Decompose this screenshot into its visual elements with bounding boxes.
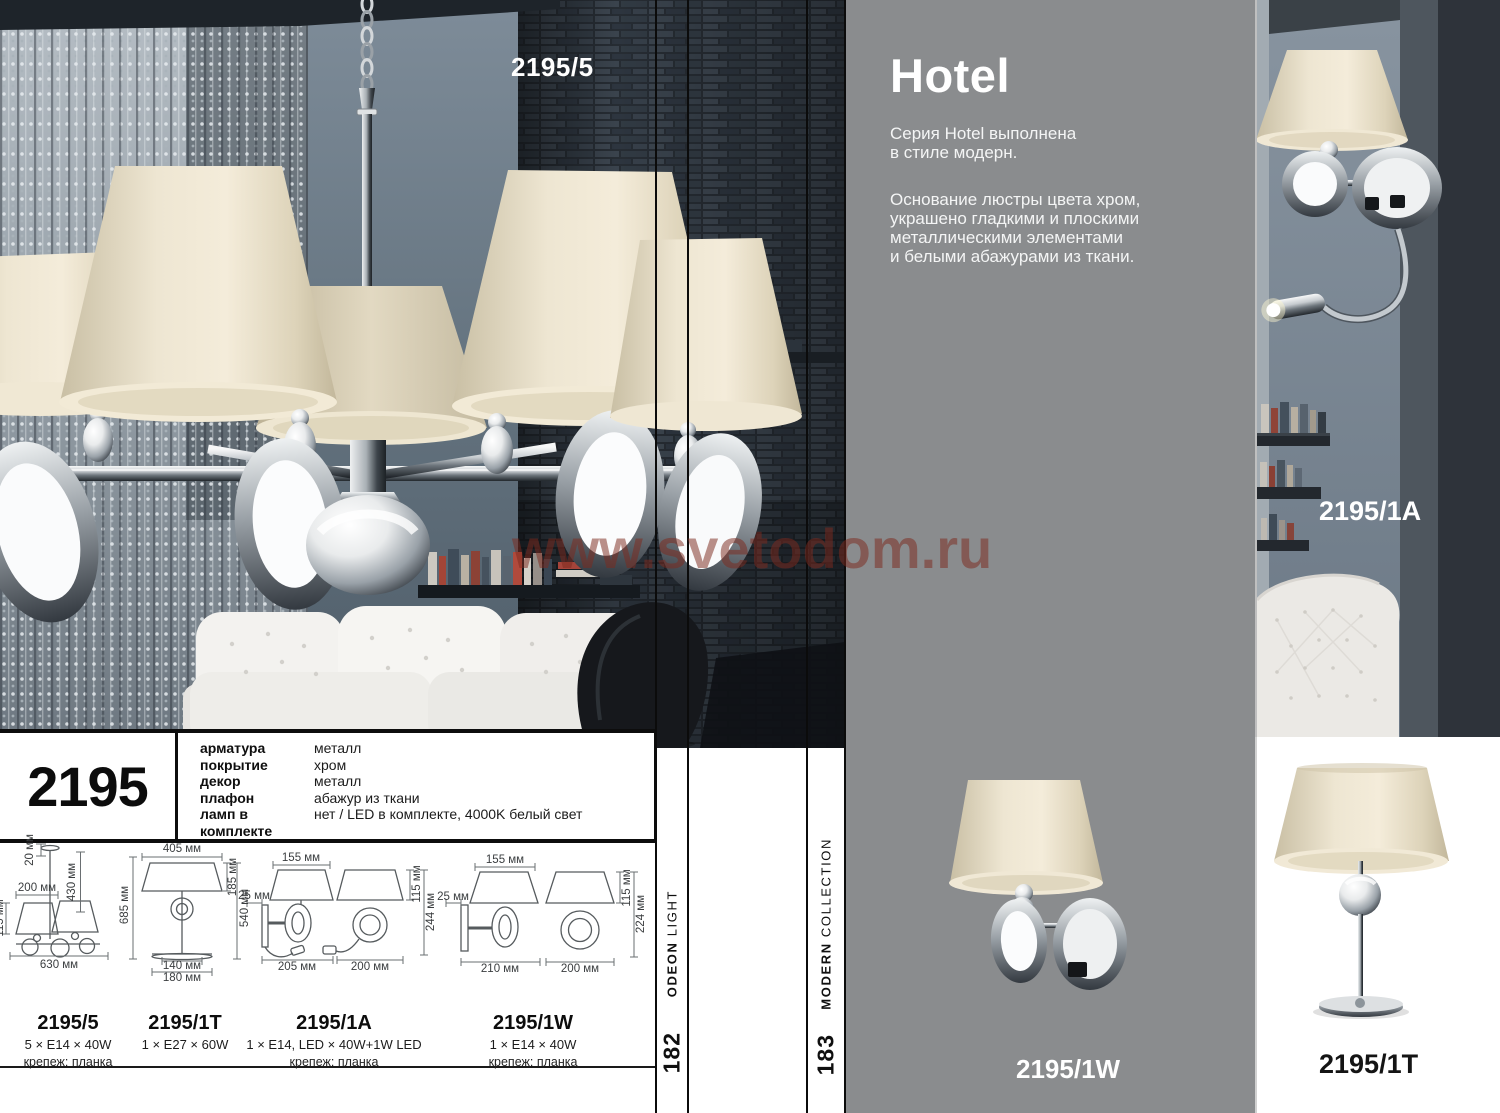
dim-label: 205 мм bbox=[278, 961, 316, 973]
dim-label: 200 мм bbox=[561, 963, 599, 975]
spec-row: арматураметалл bbox=[200, 740, 654, 757]
dim-label: 200 мм bbox=[18, 882, 56, 894]
spec-row: декорметалл bbox=[200, 773, 654, 790]
sidebar-odeon-light: ODEON LIGHT 182 bbox=[655, 0, 689, 1113]
lamp-switch bbox=[1068, 962, 1087, 977]
dim-label: 210 мм bbox=[481, 963, 519, 975]
dim-label: 115 мм bbox=[621, 869, 633, 906]
dim-label: 244 мм bbox=[425, 893, 437, 931]
wall-lamp-1w-label: 2195/1W bbox=[1016, 1054, 1120, 1085]
white-chair bbox=[1257, 575, 1399, 737]
spec-table: 2195 арматураметалл покрытиехром декорме… bbox=[0, 729, 657, 843]
dim-label: 224 мм bbox=[635, 895, 647, 933]
dim-label: 630 мм bbox=[40, 959, 78, 971]
series-panel: Hotel Серия Hotel выполнена в стиле моде… bbox=[845, 0, 1255, 1113]
table-lamp-1t-label: 2195/1T bbox=[1319, 1049, 1418, 1080]
model-number-cell: 2195 bbox=[0, 733, 178, 839]
dim-label: 685 мм bbox=[119, 886, 131, 924]
dim-label: 155 мм bbox=[282, 852, 320, 864]
chandelier-photo: 2195/5 bbox=[0, 0, 845, 748]
dim-label: 405 мм bbox=[163, 843, 201, 855]
wall-lamp-1a-photo: 2195/1A bbox=[1255, 0, 1500, 737]
wall-lamp-1a-label: 2195/1A bbox=[1319, 496, 1421, 527]
page-number-182: 182 bbox=[659, 1032, 686, 1073]
spec-row: ламп в комплектенет / LED в комплекте, 4… bbox=[200, 806, 654, 839]
spec-row: плафонабажур из ткани bbox=[200, 790, 654, 807]
dim-label: 115 мм bbox=[411, 865, 423, 902]
table-lamp-1t-photo: 2195/1T bbox=[1255, 737, 1500, 1113]
dim-label: 25 мм bbox=[238, 890, 270, 902]
led-switch bbox=[1390, 195, 1405, 208]
chandelier-scene bbox=[0, 0, 845, 748]
variant-2195-1a: 2195/1A 1 × E14, LED × 40W+1W LED крепеж… bbox=[246, 1012, 421, 1069]
dim-label: 430 мм bbox=[66, 863, 78, 901]
dim-label: 25 мм bbox=[437, 891, 469, 903]
dim-label: 115 мм bbox=[0, 899, 6, 936]
brand-odeon-light: ODEON LIGHT bbox=[665, 890, 680, 997]
model-number: 2195 bbox=[27, 754, 148, 819]
dim-label: 180 мм bbox=[163, 972, 201, 984]
series-title: Hotel bbox=[890, 48, 1010, 103]
dim-label: 200 мм bbox=[351, 961, 389, 973]
series-description: Основание люстры цвета хром, украшено гл… bbox=[890, 190, 1140, 266]
wall-lamp-1a-scene bbox=[1257, 0, 1500, 737]
series-intro: Серия Hotel выполнена в стиле модерн. bbox=[890, 124, 1076, 162]
wall-lamp-1w-image bbox=[930, 735, 1260, 1045]
lamp-switch bbox=[1365, 197, 1379, 210]
variant-2195-1w: 2195/1W 1 × E14 × 40W крепеж: планка bbox=[489, 1012, 578, 1069]
chandelier-model-label: 2195/5 bbox=[511, 52, 594, 83]
spec-row: покрытиехром bbox=[200, 757, 654, 774]
variant-2195-1t: 2195/1T 1 × E27 × 60W bbox=[142, 1012, 229, 1055]
dim-label: 140 мм bbox=[163, 960, 201, 972]
dim-label: 155 мм bbox=[486, 854, 524, 866]
variant-2195-5: 2195/5 5 × E14 × 40W крепеж: планка bbox=[24, 1012, 113, 1069]
dimension-drawings bbox=[0, 843, 657, 1013]
brand-modern-collection: MODERN COLLECTION bbox=[819, 838, 834, 1010]
dim-label: 20 мм bbox=[24, 834, 36, 866]
sidebar-modern-collection: MODERN COLLECTION 183 bbox=[806, 0, 846, 1113]
spec-rows: арматураметалл покрытиехром декорметалл … bbox=[178, 733, 654, 839]
catalog-page: 2195/5 Hotel Серия Hotel выполнена в сти… bbox=[0, 0, 1500, 1113]
page-number-183: 183 bbox=[813, 1034, 840, 1075]
